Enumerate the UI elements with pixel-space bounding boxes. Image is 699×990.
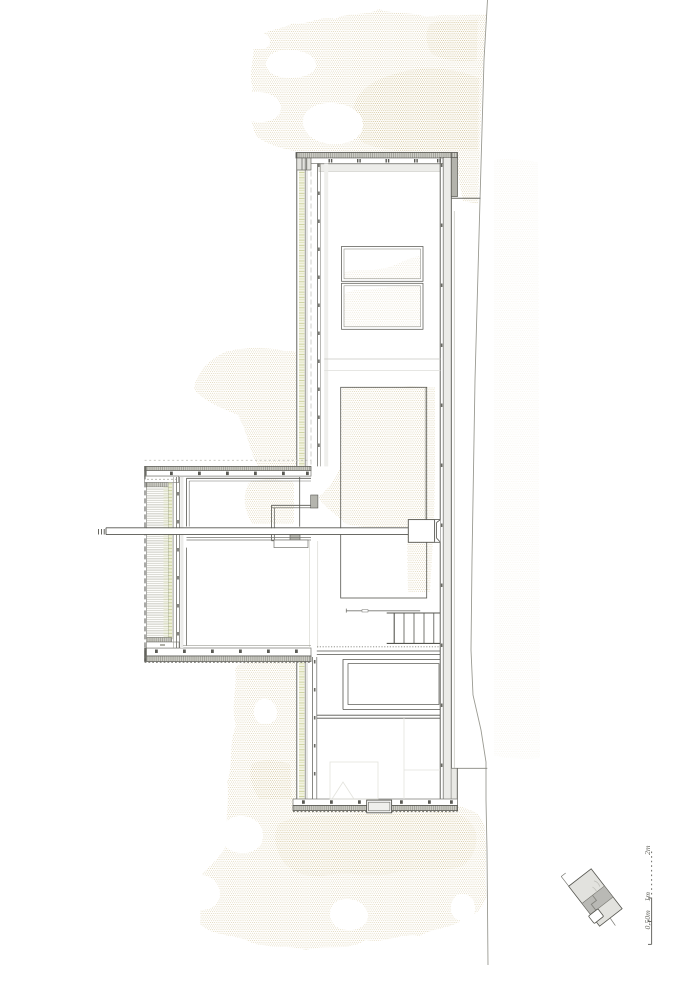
svg-text:0,50m: 0,50m bbox=[643, 910, 652, 930]
svg-text:2m: 2m bbox=[643, 845, 652, 855]
svg-text:1m: 1m bbox=[643, 892, 652, 902]
